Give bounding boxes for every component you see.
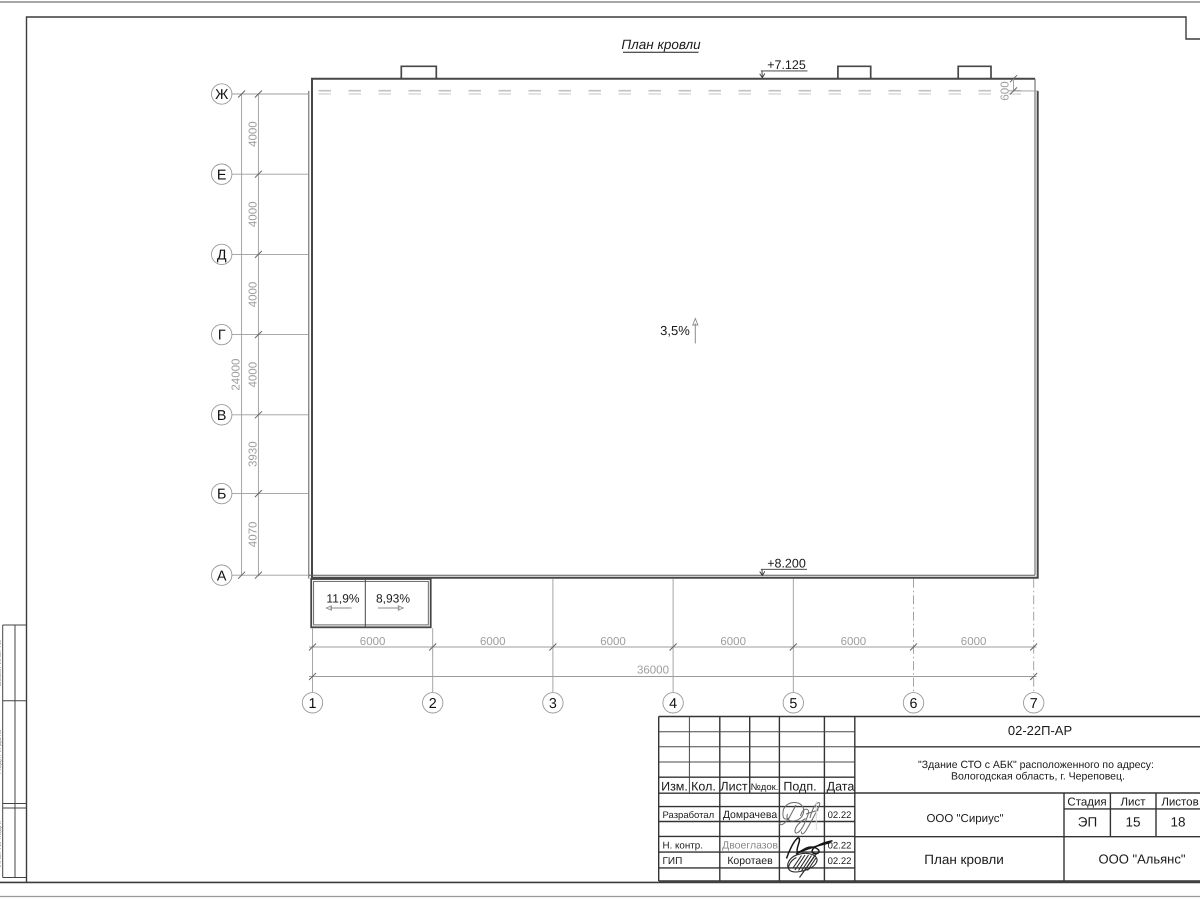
svg-text:Взам. инв. №: Взам. инв. № <box>0 640 3 686</box>
svg-text:4070: 4070 <box>248 522 260 548</box>
svg-text:ГИП: ГИП <box>663 856 683 867</box>
svg-text:3,5%: 3,5% <box>660 323 690 338</box>
svg-text:Г: Г <box>218 328 226 344</box>
svg-text:6000: 6000 <box>720 636 746 648</box>
svg-text:Двоеглазов: Двоеглазов <box>722 840 778 852</box>
svg-text:3930: 3930 <box>248 441 260 467</box>
svg-text:Н. контр.: Н. контр. <box>663 841 703 852</box>
svg-text:3: 3 <box>549 696 557 712</box>
svg-text:Вологодская область, г. Черепо: Вологодская область, г. Череповец. <box>951 771 1125 783</box>
svg-text:Изм.: Изм. <box>661 780 688 794</box>
svg-text:2: 2 <box>429 696 437 712</box>
svg-text:Стадия: Стадия <box>1067 797 1106 809</box>
svg-text:6000: 6000 <box>841 636 867 648</box>
svg-text:Инв. № подл.: Инв. № подл. <box>0 821 3 868</box>
svg-text:4000: 4000 <box>248 121 260 147</box>
svg-text:6: 6 <box>910 696 918 712</box>
svg-text:6000: 6000 <box>961 636 987 648</box>
svg-text:ООО "Альянс": ООО "Альянс" <box>1099 852 1186 867</box>
svg-text:02-22П-АР: 02-22П-АР <box>1008 723 1072 738</box>
svg-text:Лист: Лист <box>720 780 747 794</box>
svg-text:36000: 36000 <box>637 665 669 677</box>
svg-text:7: 7 <box>1030 696 1038 712</box>
svg-text:6000: 6000 <box>600 636 626 648</box>
svg-text:Д: Д <box>217 248 227 264</box>
svg-text:В: В <box>217 408 227 424</box>
svg-text:4000: 4000 <box>248 282 260 308</box>
svg-text:ЭП: ЭП <box>1078 815 1097 830</box>
svg-text:+8.200: +8.200 <box>767 556 806 570</box>
svg-text:ООО "Сириус": ООО "Сириус" <box>926 813 1003 825</box>
svg-text:6000: 6000 <box>360 636 386 648</box>
svg-text:24000: 24000 <box>231 359 243 391</box>
svg-text:Домрачева: Домрачева <box>723 809 778 821</box>
svg-text:Подп. и дата: Подп. и дата <box>0 729 3 774</box>
svg-text:02.22: 02.22 <box>828 856 852 867</box>
svg-text:План кровли: План кровли <box>621 37 701 52</box>
svg-text:План кровли: План кровли <box>924 852 1004 867</box>
svg-text:1: 1 <box>309 696 317 712</box>
svg-text:А: А <box>217 568 227 584</box>
svg-text:4: 4 <box>669 696 677 712</box>
svg-text:Б: Б <box>217 487 226 503</box>
svg-text:8,93%: 8,93% <box>376 592 410 606</box>
svg-text:Коротаев: Коротаев <box>727 855 773 867</box>
svg-text:Ж: Ж <box>215 87 228 103</box>
svg-text:Лист: Лист <box>1121 797 1147 809</box>
svg-text:+7.125: +7.125 <box>767 58 806 72</box>
svg-text:Разработал: Разработал <box>663 810 715 821</box>
svg-text:Е: Е <box>217 167 227 183</box>
svg-text:№док.: №док. <box>751 782 779 793</box>
svg-text:Дата: Дата <box>827 780 855 794</box>
svg-text:5: 5 <box>789 696 797 712</box>
svg-text:4000: 4000 <box>248 202 260 228</box>
svg-text:Кол.: Кол. <box>691 780 716 794</box>
svg-text:4000: 4000 <box>248 362 260 388</box>
svg-text:"Здание СТО с АБК" расположенн: "Здание СТО с АБК" расположенного по адр… <box>918 759 1154 771</box>
svg-text:02.22: 02.22 <box>828 841 852 852</box>
svg-text:6000: 6000 <box>480 636 506 648</box>
svg-text:18: 18 <box>1170 815 1185 830</box>
svg-text:Подп.: Подп. <box>783 780 816 794</box>
svg-text:15: 15 <box>1125 815 1140 830</box>
svg-text:Листов: Листов <box>1161 797 1198 809</box>
svg-text:11,9%: 11,9% <box>326 592 359 606</box>
svg-text:600: 600 <box>1000 81 1012 100</box>
svg-text:02.22: 02.22 <box>828 810 852 821</box>
